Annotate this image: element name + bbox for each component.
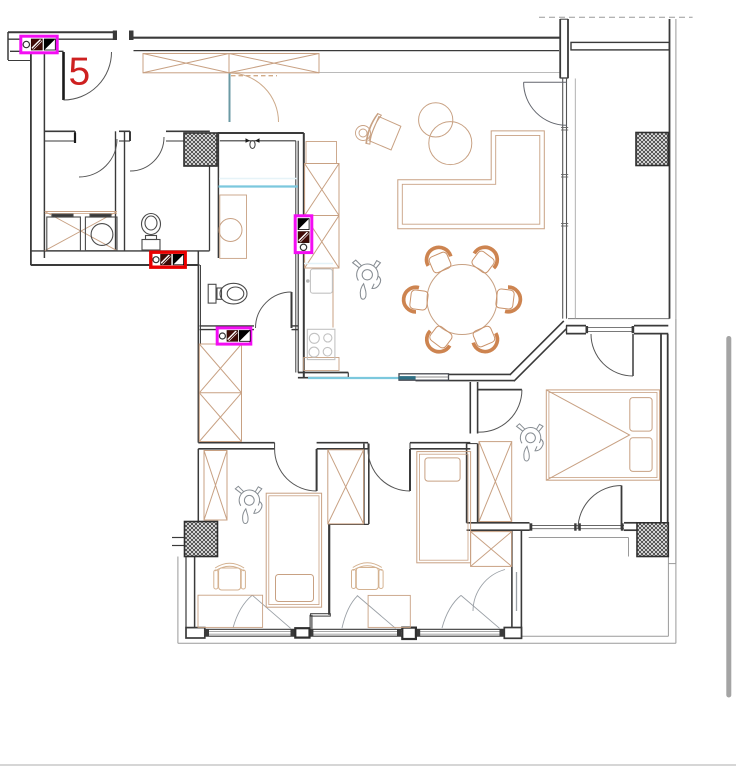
svg-text:5: 5 bbox=[69, 51, 91, 94]
